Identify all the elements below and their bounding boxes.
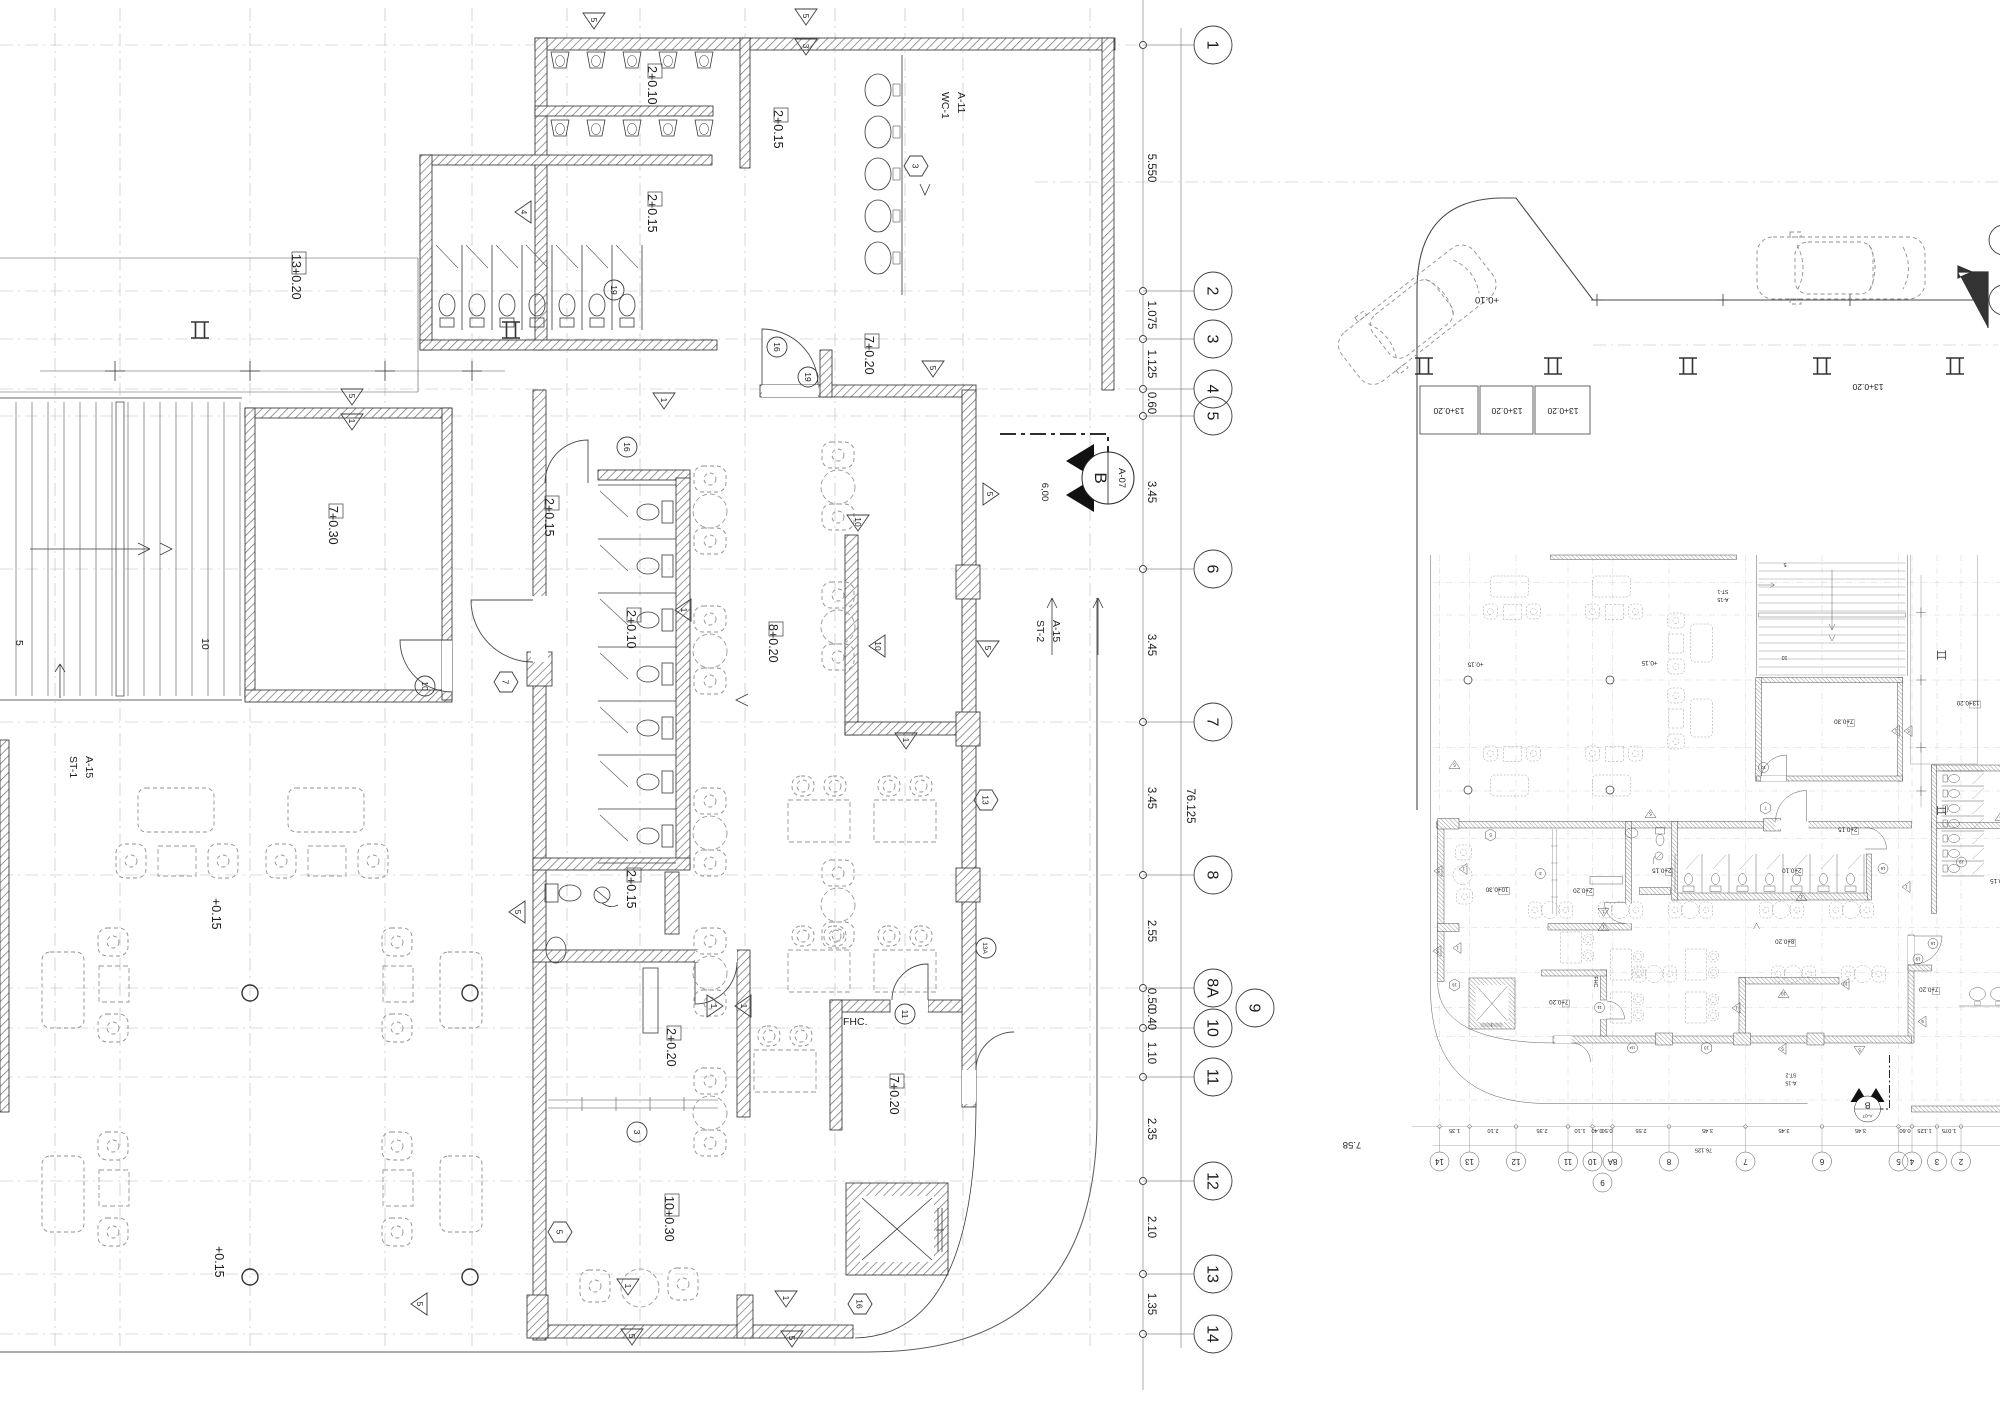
right-plan [1412,555,2000,1192]
floor-plan-sheet: B A-07 2+0.102+0.15WC-1A-112+0.157+0.201… [0,0,2000,1413]
site-label: 13+0.20 [1433,406,1464,416]
left-plan [0,0,1274,1390]
site-label: 13+0.20 [1491,406,1522,416]
site-label: 6,00 [1039,483,1050,502]
site-elements: 13+0.2013+0.2013+0.2013+0.20+0.107.586,0… [1035,182,2000,1150]
cad-sheet: B A-07 2+0.102+0.15WC-1A-112+0.157+0.201… [0,0,2000,1413]
site-label: +0.10 [1475,294,1499,305]
site-label: 13+0.20 [1547,406,1578,416]
site-label: 7.58 [1343,1139,1362,1150]
site-label: 13+0.20 [1852,382,1883,392]
